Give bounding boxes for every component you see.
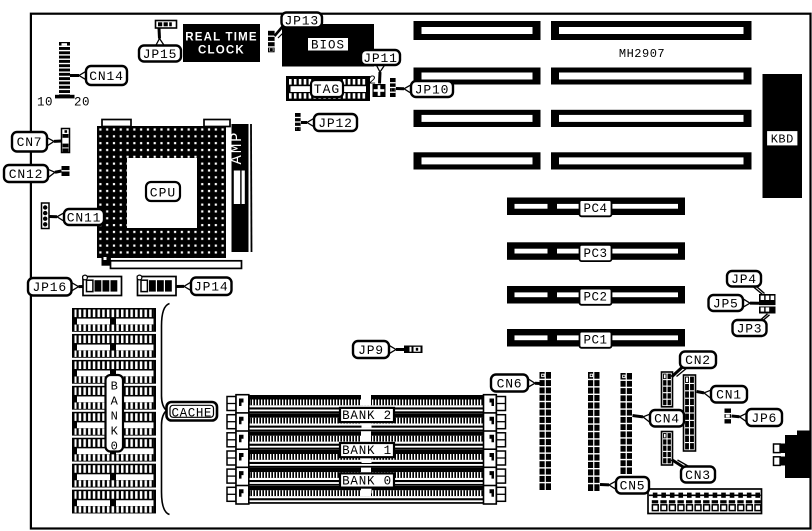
svg-text:JP13: JP13 <box>285 13 319 28</box>
svg-text:CACHE: CACHE <box>172 406 213 420</box>
svg-text:20: 20 <box>74 96 90 110</box>
svg-text:CN11: CN11 <box>67 210 101 225</box>
svg-text:BIOS: BIOS <box>311 38 345 52</box>
svg-text:JP11: JP11 <box>363 51 397 66</box>
svg-text:0: 0 <box>111 440 118 454</box>
svg-text:CN5: CN5 <box>620 479 646 494</box>
svg-text:CN2: CN2 <box>685 353 711 368</box>
svg-text:A: A <box>111 395 119 409</box>
svg-text:KBD: KBD <box>771 133 794 147</box>
svg-text:CN14: CN14 <box>89 69 123 84</box>
svg-text:TAG: TAG <box>314 82 340 97</box>
svg-text:CPU: CPU <box>150 185 176 200</box>
svg-text:CN4: CN4 <box>654 412 680 427</box>
svg-text:BANK 1: BANK 1 <box>342 444 392 458</box>
svg-text:JP12: JP12 <box>318 116 352 131</box>
svg-text:B: B <box>111 380 118 394</box>
svg-text:CN7: CN7 <box>17 135 43 150</box>
svg-text:10: 10 <box>37 96 53 110</box>
svg-text:CN12: CN12 <box>9 167 43 182</box>
svg-text:K: K <box>111 425 119 439</box>
svg-text:JP10: JP10 <box>415 82 449 97</box>
svg-text:CN3: CN3 <box>685 468 711 483</box>
svg-text:BANK 2: BANK 2 <box>342 409 392 423</box>
svg-text:PC4: PC4 <box>583 202 607 216</box>
svg-text:JP14: JP14 <box>194 280 228 295</box>
svg-text:JP6: JP6 <box>751 411 777 426</box>
svg-text:2: 2 <box>369 74 377 88</box>
svg-text:BANK 0: BANK 0 <box>342 475 392 489</box>
svg-text:JP15: JP15 <box>143 47 177 62</box>
svg-text:MH2907: MH2907 <box>619 47 665 61</box>
svg-text:PC2: PC2 <box>583 291 607 305</box>
svg-text:REAL TIME: REAL TIME <box>185 32 258 44</box>
svg-text:JP4: JP4 <box>731 272 757 287</box>
svg-text:PC1: PC1 <box>583 334 607 348</box>
svg-text:JP5: JP5 <box>713 296 739 311</box>
svg-text:JP3: JP3 <box>737 321 763 336</box>
svg-text:JP9: JP9 <box>358 343 384 358</box>
svg-text:PC3: PC3 <box>583 247 607 261</box>
svg-text:CLOCK: CLOCK <box>198 45 245 57</box>
svg-text:AMP: AMP <box>228 131 246 165</box>
svg-text:CN1: CN1 <box>716 388 742 403</box>
svg-text:JP16: JP16 <box>33 280 67 295</box>
svg-text:N: N <box>111 410 118 424</box>
svg-text:CN6: CN6 <box>497 376 523 391</box>
